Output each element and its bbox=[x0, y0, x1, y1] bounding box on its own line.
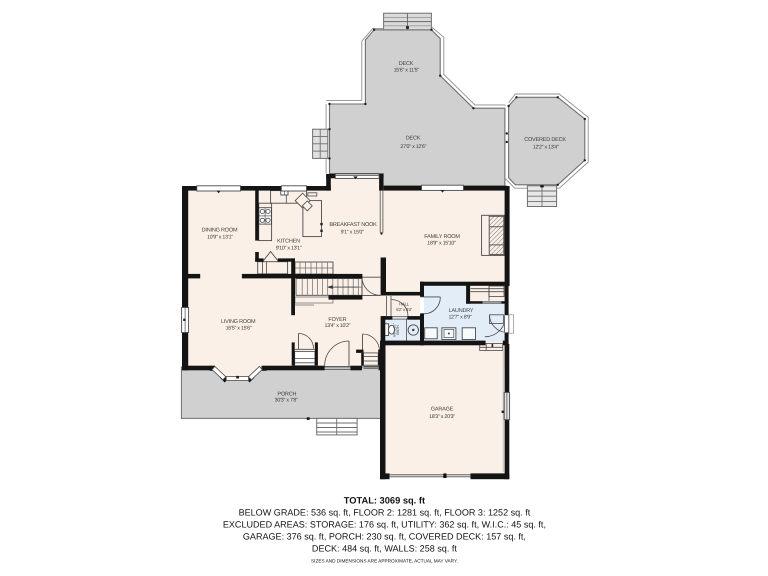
svg-text:GARAGE: 376 sq. ft, PORCH: 230: GARAGE: 376 sq. ft, PORCH: 230 sq. ft, C… bbox=[243, 532, 526, 542]
svg-text:5'2" x 3'4": 5'2" x 3'4" bbox=[396, 307, 412, 312]
svg-text:12'7" x 8'9": 12'7" x 8'9" bbox=[448, 314, 471, 320]
svg-text:BREAKFAST NOOK: BREAKFAST NOOK bbox=[329, 222, 377, 228]
svg-text:13'4" x 10'2": 13'4" x 10'2" bbox=[324, 323, 350, 329]
svg-text:HALL: HALL bbox=[399, 302, 409, 307]
svg-text:COVERED DECK: COVERED DECK bbox=[524, 137, 566, 143]
svg-text:DECK: DECK bbox=[406, 135, 421, 141]
svg-text:LIVING ROOM: LIVING ROOM bbox=[221, 319, 256, 325]
svg-text:5'8" x 3'1": 5'8" x 3'1" bbox=[393, 323, 397, 337]
svg-text:SIZES AND DIMENSIONS ARE APPRO: SIZES AND DIMENSIONS ARE APPROXIMATE, AC… bbox=[311, 558, 458, 564]
svg-text:16'5" x 15'6": 16'5" x 15'6" bbox=[226, 325, 252, 331]
svg-text:BELOW GRADE: 536 sq. ft, FLOOR: BELOW GRADE: 536 sq. ft, FLOOR 2: 1281 s… bbox=[239, 507, 531, 517]
svg-text:FAMILY ROOM: FAMILY ROOM bbox=[424, 233, 460, 239]
svg-text:30'3" x 7'8": 30'3" x 7'8" bbox=[275, 397, 298, 403]
svg-text:GARAGE: GARAGE bbox=[431, 406, 453, 412]
svg-text:PORCH: PORCH bbox=[277, 391, 296, 397]
svg-text:FOYER: FOYER bbox=[328, 316, 346, 322]
svg-text:DECK: 484 sq. ft, WALLS: 258 s: DECK: 484 sq. ft, WALLS: 258 sq. ft bbox=[312, 544, 457, 554]
svg-text:18'3" x 20'3": 18'3" x 20'3" bbox=[429, 414, 455, 420]
svg-text:10'9" x 13'1": 10'9" x 13'1" bbox=[207, 234, 233, 240]
svg-text:DECK: DECK bbox=[399, 61, 414, 67]
svg-text:DINING ROOM: DINING ROOM bbox=[202, 227, 238, 233]
svg-text:18'9" x 15'10": 18'9" x 15'10" bbox=[427, 240, 456, 246]
svg-text:27'0" x 12'6": 27'0" x 12'6" bbox=[400, 144, 426, 150]
svg-text:LAUNDRY: LAUNDRY bbox=[449, 308, 474, 314]
svg-text:9'10" x 13'1": 9'10" x 13'1" bbox=[276, 245, 302, 251]
svg-text:EXCLUDED AREAS: STORAGE: 176 s: EXCLUDED AREAS: STORAGE: 176 sq. ft, UTI… bbox=[223, 519, 546, 529]
svg-text:KITCHEN: KITCHEN bbox=[277, 238, 300, 244]
svg-text:12'2" x 13'4": 12'2" x 13'4" bbox=[533, 144, 559, 150]
svg-text:TOTAL: 3069 sq. ft: TOTAL: 3069 sq. ft bbox=[344, 495, 425, 506]
svg-text:9'1" x 15'0": 9'1" x 15'0" bbox=[341, 229, 364, 235]
svg-text:15'6" x 11'5": 15'6" x 11'5" bbox=[394, 67, 420, 73]
